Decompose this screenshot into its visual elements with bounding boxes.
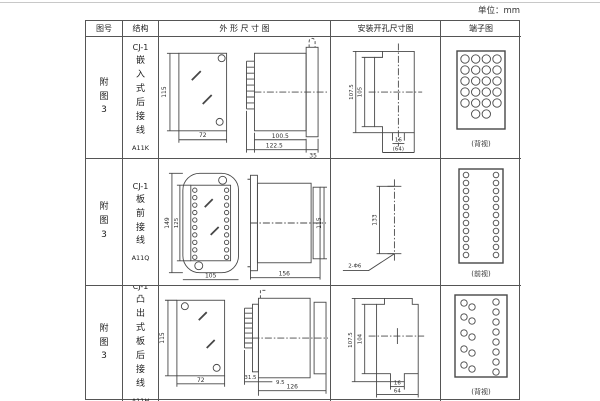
terminal-circles [461,54,501,117]
terminal-cell-row2: (前视) [441,159,521,286]
structure-label-row2: 板前接线 [135,194,146,250]
col-header-terminal: 端子图 [441,21,521,37]
terminal-drawing-row1 [441,47,521,137]
series-label-row1: CJ-1 [133,43,149,52]
unit-label: 单位：mm [400,4,520,16]
side-view [245,290,329,377]
install-cell-row3: 107.5 104 16 64 [331,286,441,401]
col-header-structure: 结构 [123,21,159,37]
front-dim-lines [165,300,225,386]
structure-cell-row3: CJ-1 凸出式板后接线 A11H [123,286,159,401]
figure-no-cell-row1: 附图3 [86,37,123,159]
dim-total-length-row1: 122.5 [266,142,283,149]
figure-no-row2: 附图3 [99,201,110,243]
figure-no-cell-row2: 附图3 [86,159,123,286]
dim-offset-row3: 9.5 [276,380,285,386]
outline-drawing-row3: 115 72 31.5 9.5 126 [159,286,330,401]
cutout-outline [369,298,424,381]
col-header-figure-no: 图号 [86,21,123,37]
dim-inner-height-row2: 125 [174,217,180,227]
outline-cell-row3: 115 72 31.5 9.5 126 [159,286,331,401]
hole-spec-label-row2: 2-Φ6 [348,263,362,269]
install-drawing-row2: 133 2-Φ6 [331,159,440,286]
series-label-row2: CJ-1 [133,182,149,191]
install-dim-lines [352,298,418,397]
dim-side-height-row2: 115 [316,217,323,229]
structure-cell-row2: CJ-1 板前接线 A11Q [123,159,159,286]
hole-axis [387,179,401,260]
terminal-circles [461,298,499,374]
front-view [177,300,225,376]
terminal-drawing-row3 [441,291,521,385]
manual-page: { "page": { "unit_label": "单位：mm" }, "ta… [0,0,600,400]
terminal-circles [463,172,499,258]
dim-side-length-row2: 156 [279,270,291,277]
dim-outer-height-row3: 107.5 [348,332,354,348]
dim-hole-pitch-row2: 133 [372,214,379,226]
view-caption-row3: (背视) [471,387,490,397]
front-view [179,53,227,131]
front-dim-lines [167,53,227,142]
model-label-row1: A11K [132,144,149,152]
structure-cell-row1: CJ-1 嵌入式后接线 A11K [123,37,159,159]
figure-no-cell-row3: 附图3 [86,286,123,401]
dim-panel-width-row1: (64) [393,146,404,152]
outline-drawing-row1: 115 72 100.5 122.5 35 [159,37,330,159]
dim-slot-width-row3: 16 [394,381,401,387]
install-dim-lines [343,186,395,270]
dim-pin-length-row3: 31.5 [244,375,256,381]
col-header-outline: 外 形 尺 寸 图 [159,21,331,37]
figure-no-row3: 附图3 [99,323,110,365]
outline-drawing-row2: 149 125 105 115 156 [159,159,330,286]
dim-front-height-row1: 115 [161,86,168,98]
dim-flange-row1: 35 [309,152,317,158]
install-dim-lines [353,51,414,152]
install-drawing-row1: 107.5 105 16 (64) [331,37,440,159]
dim-front-width-row3: 72 [197,377,205,384]
figure-no-row1: 附图3 [99,77,110,119]
view-caption-row1: (背视) [471,139,490,149]
model-label-row3: A11H [132,397,150,401]
dim-body-length-row1: 100.5 [272,132,289,139]
structure-label-row3: 凸出式板后接线 [135,294,146,392]
cutout-outline [369,43,423,146]
outline-cell-row2: 149 125 105 115 156 [159,159,331,286]
dim-side-length-row3: 126 [287,384,299,391]
front-terminal-dots [193,188,229,259]
dim-inner-height-row3: 104 [358,333,364,344]
page-top-rule [0,2,600,3]
structure-label-row1: 嵌入式后接线 [135,55,146,139]
dim-front-width-row1: 72 [199,131,207,138]
terminal-cell-row1: (背视) [441,37,521,159]
series-label-row3: CJ-1 [133,286,149,291]
dim-slot-width-row1: 16 [395,137,402,143]
dim-outer-height-row1: 107.5 [349,84,355,100]
dim-front-height-row3: 115 [159,332,166,344]
dim-inner-height-row1: 105 [358,86,364,96]
terminal-drawing-row2 [441,165,521,267]
col-header-install: 安装开孔尺寸图 [331,21,441,37]
side-view [246,38,328,136]
side-dim-lines [250,187,327,279]
dim-flange-height-row2: 149 [164,217,171,229]
install-drawing-row3: 107.5 104 16 64 [331,286,440,401]
dim-front-width-row2: 105 [205,272,217,279]
view-caption-row2: (前视) [471,269,490,279]
model-label-row2: A11Q [132,254,150,262]
spec-table: 图号 结构 外 形 尺 寸 图 安装开孔尺寸图 端子图 附图3 CJ-1 嵌入式… [85,20,520,400]
outline-cell-row1: 115 72 100.5 122.5 35 [159,37,331,159]
terminal-cell-row3: (背视) [441,286,521,401]
install-cell-row2: 133 2-Φ6 [331,159,441,286]
front-view [183,173,239,272]
side-view [247,175,326,270]
dim-panel-width-row3: 64 [394,389,401,395]
install-cell-row1: 107.5 105 16 (64) [331,37,441,159]
